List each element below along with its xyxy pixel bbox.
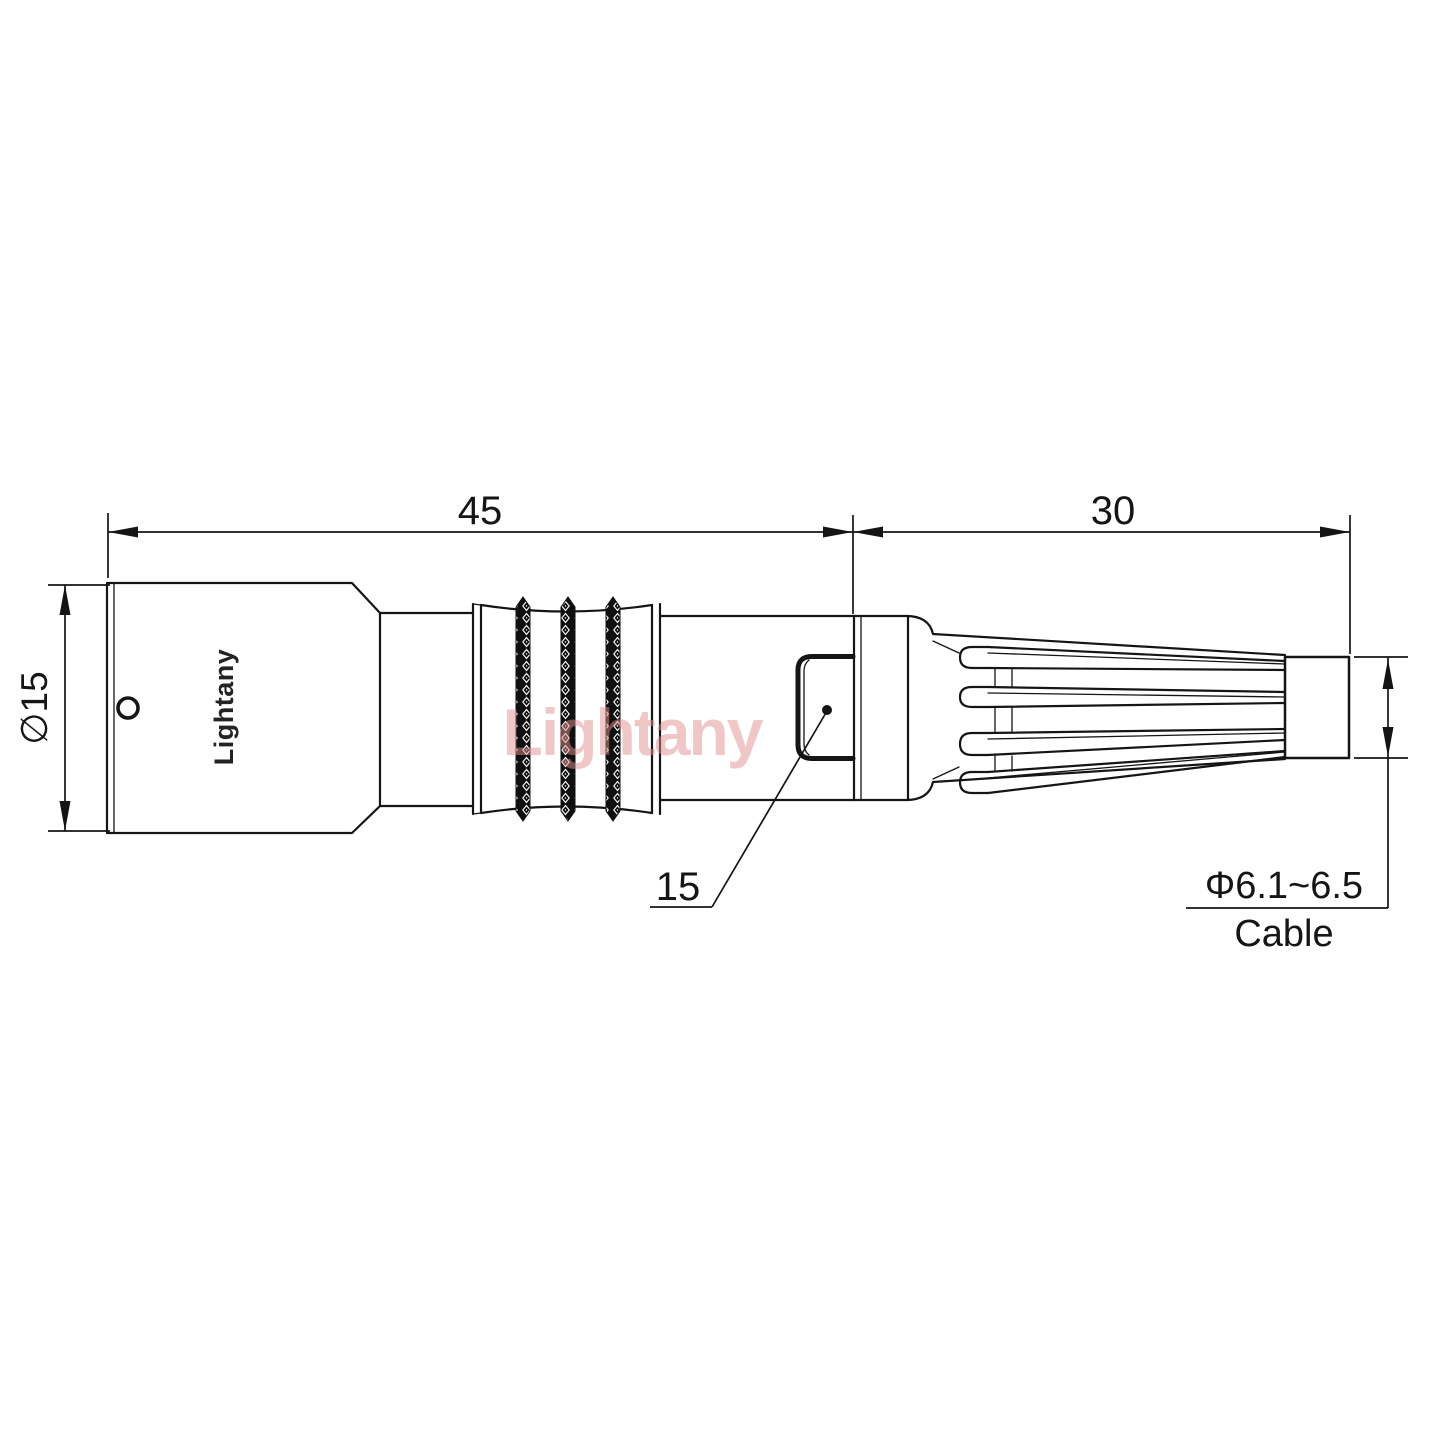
arrowhead-up <box>1383 659 1394 689</box>
dim-cable-diameter: Φ6.1~6.5 Cable <box>1186 657 1408 955</box>
spline-connector <box>995 708 1012 732</box>
dim-body-diameter: ∅15 <box>14 585 110 831</box>
latch-recess <box>798 657 853 759</box>
dim-d15-text: ∅15 <box>14 671 55 744</box>
connector-body: Lightany <box>107 583 380 833</box>
finger-highlight <box>988 693 1285 697</box>
slot-diagonal <box>933 767 959 779</box>
slot-diagonal <box>933 641 959 653</box>
arrowhead-right <box>1320 527 1350 538</box>
strain-relief-holder <box>853 616 1285 800</box>
arrowhead-down <box>1383 727 1394 757</box>
dim-strain-length: 30 <box>853 489 1350 654</box>
finger-cap <box>960 647 988 668</box>
finger-strip-edge <box>988 703 1285 707</box>
finger-strip-edge <box>988 687 1285 692</box>
finger-cap <box>960 772 988 793</box>
drawing-page: Lightany <box>0 0 1440 1440</box>
finger-highlight <box>988 733 1285 739</box>
body-outline-path <box>107 583 380 833</box>
dim-30-text: 30 <box>1091 489 1136 533</box>
cable-word-text: Cable <box>1234 913 1333 955</box>
drawing-canvas: Lightany <box>0 0 1440 1440</box>
cable-end-block <box>1285 657 1349 758</box>
watermark-text: Lightany <box>503 695 764 769</box>
finger-strip-edge <box>988 729 1285 733</box>
arrowhead-right <box>823 527 853 538</box>
finger-strip-edge <box>988 668 1285 670</box>
front-barrel <box>380 613 473 806</box>
arrowhead-down <box>60 801 71 831</box>
latch-inner-line <box>804 660 809 755</box>
finger-cap <box>960 687 988 707</box>
dim-15-text: 15 <box>656 865 701 909</box>
spline-connector <box>995 669 1012 686</box>
arrowhead-up <box>60 585 71 615</box>
arrowhead-left <box>108 527 138 538</box>
spline-connector <box>995 756 1012 771</box>
finger-cap <box>960 733 988 755</box>
ring-left-cap-top <box>473 604 481 605</box>
body-logo-text: Lightany <box>209 649 239 766</box>
holder-top-taper <box>853 616 1285 655</box>
dim-body-length: 45 <box>108 489 853 614</box>
dim-45-text: 45 <box>458 489 503 533</box>
body-hole <box>118 698 138 718</box>
arrowhead-left <box>853 527 883 538</box>
finger-strip-edge <box>988 740 1285 755</box>
cable-diameter-text: Φ6.1~6.5 <box>1205 865 1363 907</box>
leader-dot <box>822 705 832 715</box>
ring-left-cap-bottom <box>473 813 481 814</box>
